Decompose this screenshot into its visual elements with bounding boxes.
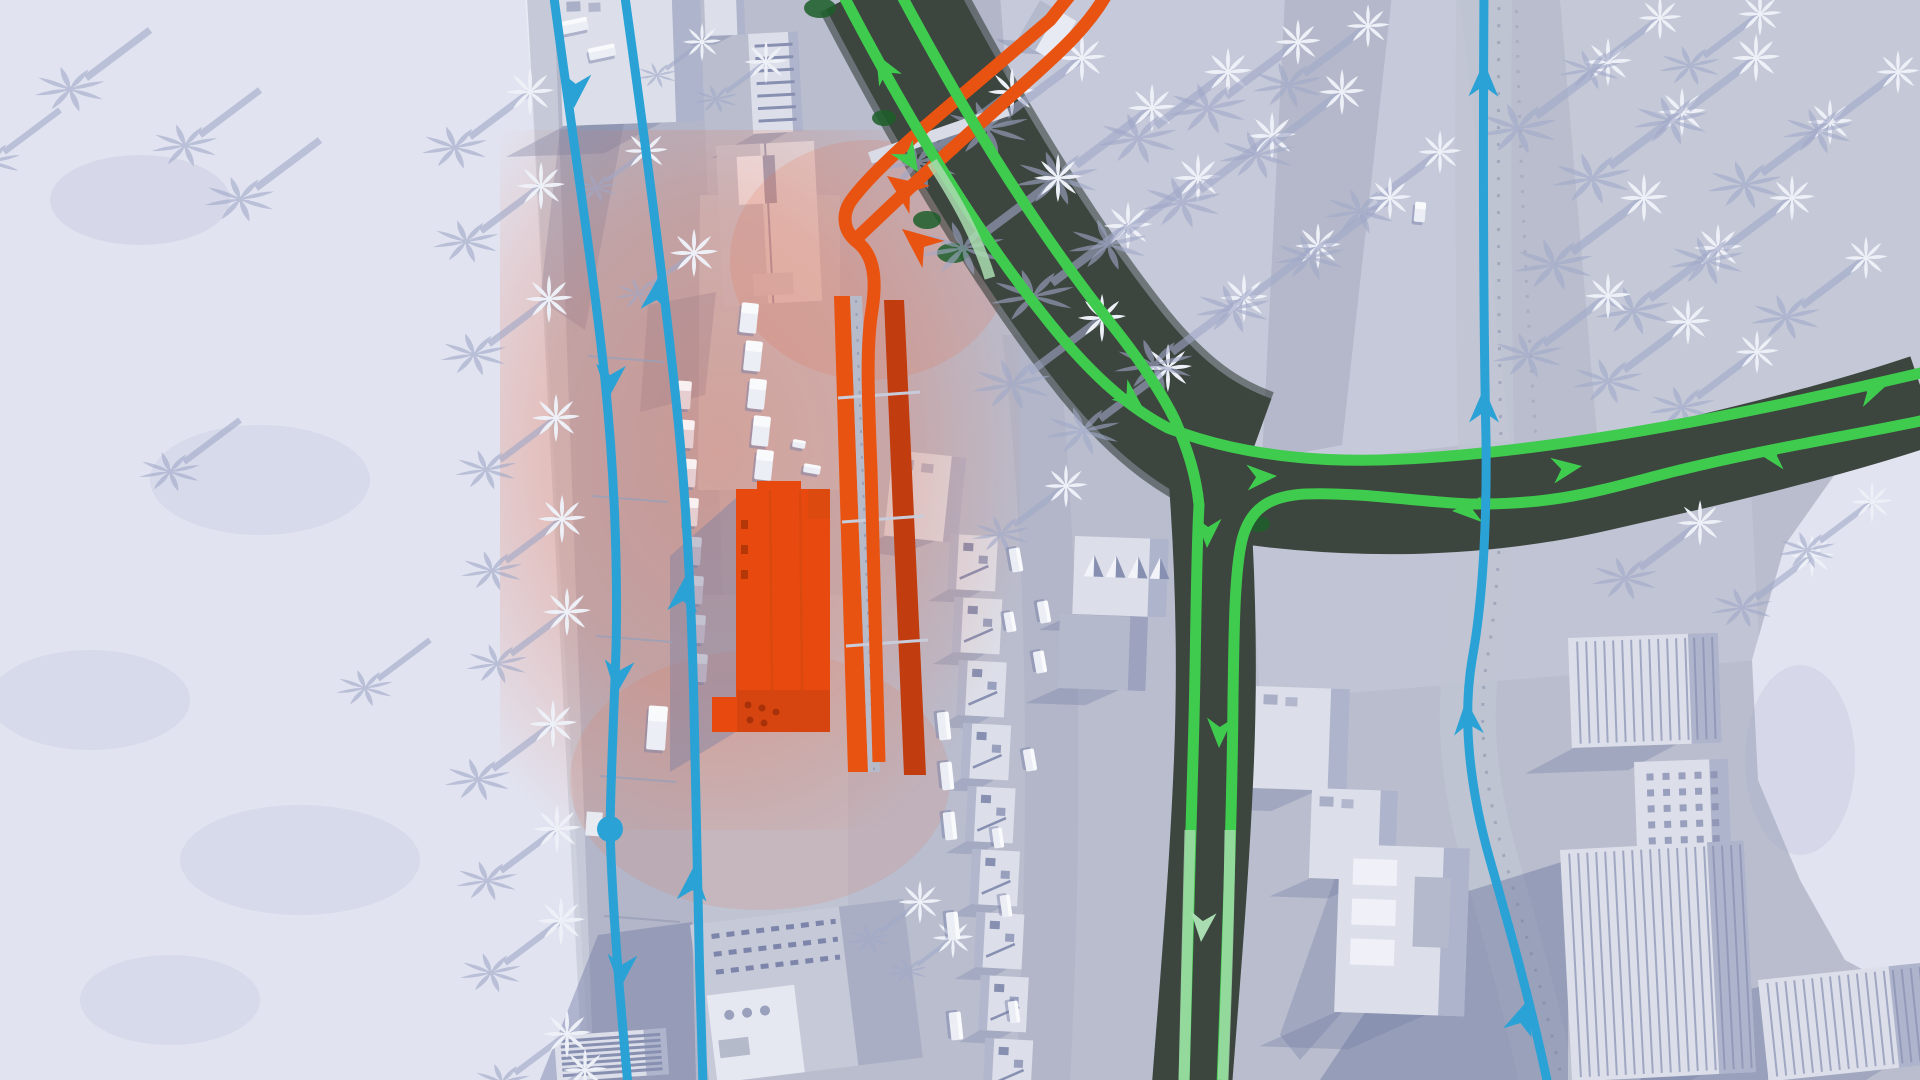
game-viewport[interactable] [0,0,1920,1080]
vehicle [752,449,774,484]
vehicle [933,709,951,740]
vehicle [942,909,960,940]
transit-stop[interactable] [597,816,623,842]
vehicle [945,1009,963,1040]
vehicle [749,415,771,450]
map-canvas[interactable] [0,0,1920,1080]
vehicle [936,759,954,790]
vehicle [644,705,668,753]
vehicle [737,302,759,337]
vehicle [745,378,767,413]
vehicle [939,809,957,840]
vehicle [741,340,763,375]
